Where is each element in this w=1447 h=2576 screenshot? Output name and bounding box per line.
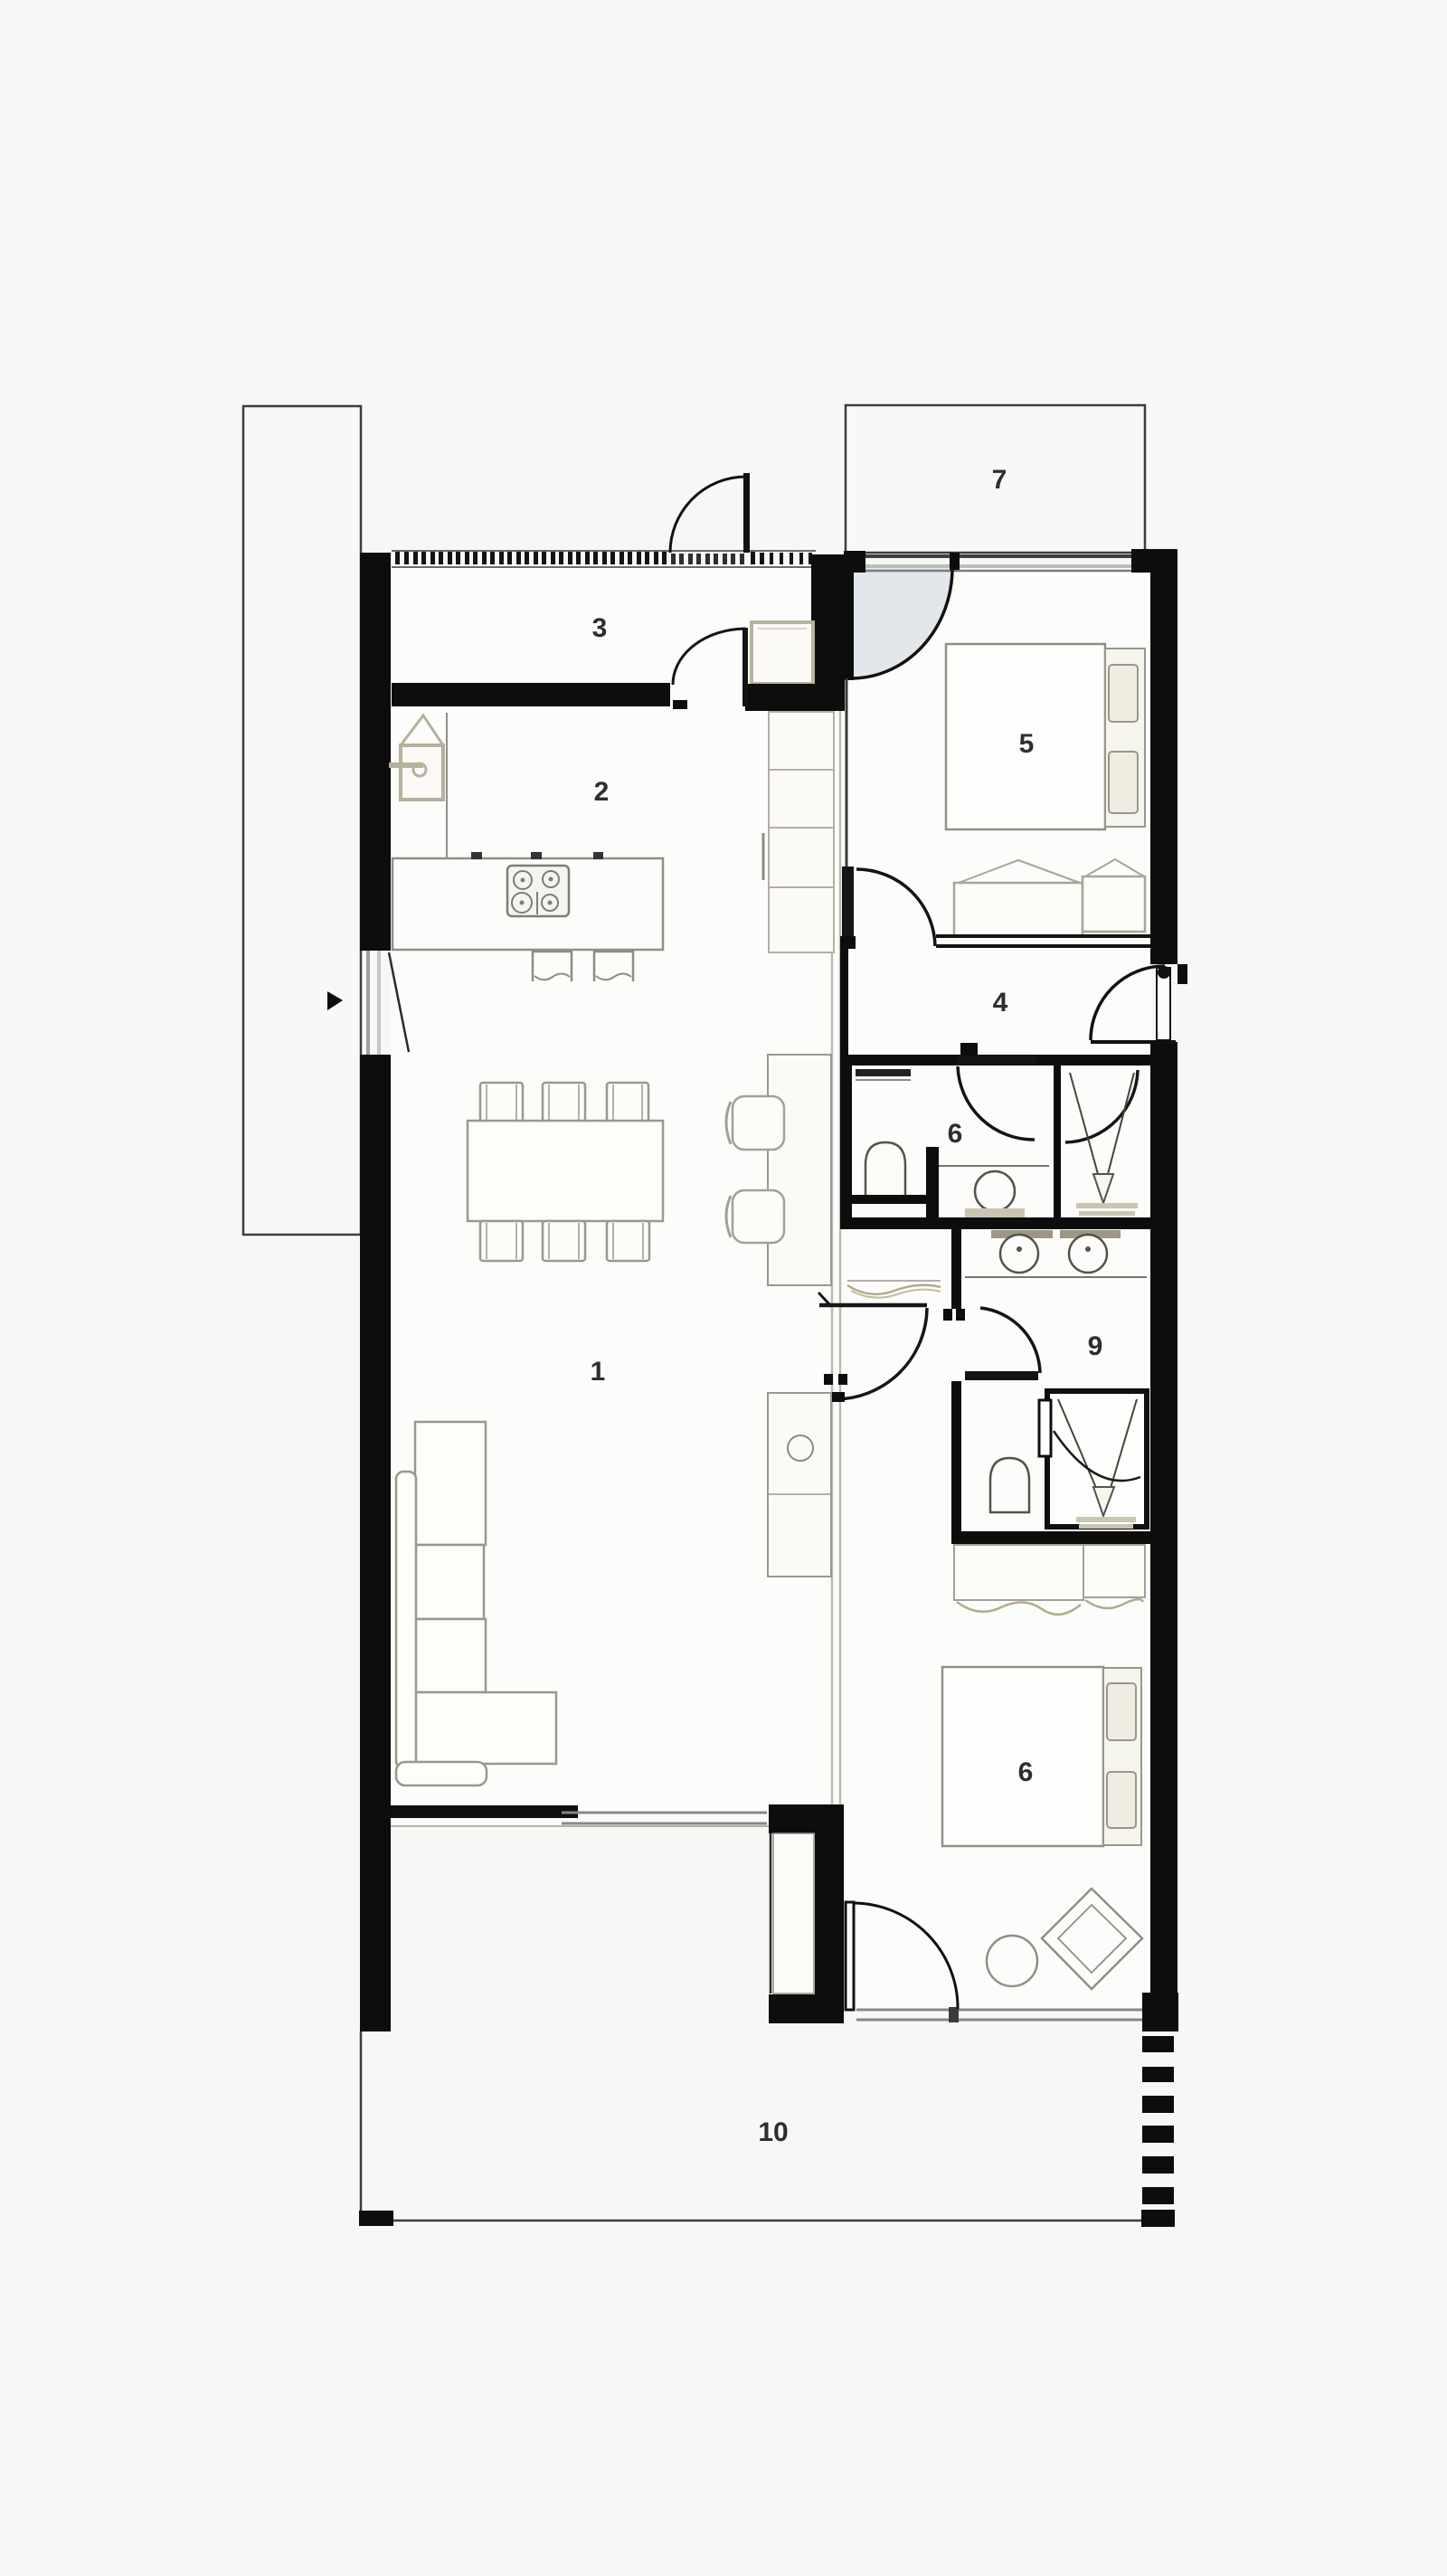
svg-text:3: 3 [592,613,608,643]
svg-text:6: 6 [1018,1757,1034,1787]
svg-text:2: 2 [594,777,610,807]
svg-text:4: 4 [993,988,1008,1018]
svg-text:5: 5 [1019,729,1035,759]
svg-text:10: 10 [758,2117,788,2147]
svg-text:1: 1 [591,1357,606,1387]
svg-text:7: 7 [992,465,1007,495]
svg-text:9: 9 [1088,1331,1103,1361]
svg-text:6: 6 [948,1119,963,1149]
